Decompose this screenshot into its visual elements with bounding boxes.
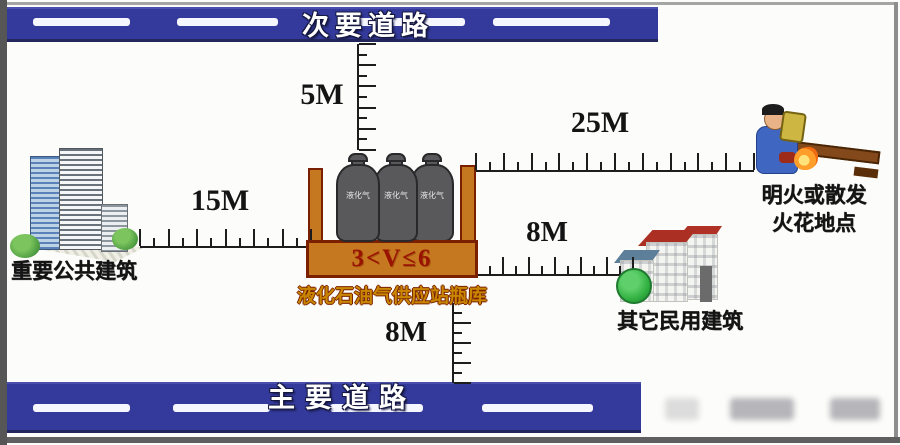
ruler-to-main-road [452,303,471,383]
ruler-tick [711,162,713,170]
lane-marking [33,18,130,26]
ruler-tick [528,257,530,274]
lane-marking [493,18,610,26]
welding-mask-icon [779,110,807,143]
ruler-tick [545,162,547,170]
frame-bottom-edge [0,437,900,443]
safety-distance-diagram: 次要道路 主要道路 5M 15M 25M 8M 8M 3<V≤6 液化石油气供应… [0,0,900,445]
gas-cylinder-icon: 液化气 [374,164,418,242]
ruler-tick [642,153,644,170]
ruler-tick [359,149,376,151]
ruler-tick [454,332,462,334]
ruler-tick [580,257,582,274]
ruler-tick [359,85,376,87]
flame-icon [794,147,818,170]
ruler-tick [567,266,569,274]
ruler-tick [454,352,462,354]
ruler-tick [359,107,376,109]
ruler-tick [541,266,543,274]
lane-marking [482,404,593,412]
bush-icon [10,234,40,258]
frame-top-edge [7,2,898,5]
lane-marking [173,404,270,412]
ruler-tick [697,153,699,170]
ruler-tick [593,266,595,274]
public-building-label: 重要公共建筑 [8,260,140,284]
ruler-tick [753,153,755,170]
ruler-tick [359,128,376,130]
ruler-tick [503,153,505,170]
ruler-tick [739,162,741,170]
welder-hair-icon [762,104,784,115]
ruler-tick [531,153,533,170]
ruler-tick [502,257,504,274]
ruler-tick [359,117,367,119]
lane-marking [177,18,278,26]
ruler-tick [600,162,602,170]
ruler-tick [267,238,269,246]
ruler-tick [475,153,477,170]
secondary-road-label: 次要道路 [302,13,434,40]
ruler-tick [454,362,471,364]
gas-cylinder-text: 液化气 [384,192,408,240]
container-base: 3<V≤6 [306,240,478,278]
ruler-tick [359,43,376,45]
ruler-tick [670,153,672,170]
ruler-to-public-building [140,229,311,248]
ruler-tick [586,153,588,170]
ruler-tick [489,266,491,274]
ruler-tick [359,138,367,140]
building-door [700,266,712,302]
ruler-tick [684,162,686,170]
ruler-to-civil-building [477,257,633,276]
ruler-tick [454,312,462,314]
watermark-blur [665,398,699,420]
gas-cylinder-text: 液化气 [346,192,370,240]
distance-8m-bottom-label: 8M [356,318,456,347]
station-caption: 液化石油气供应站瓶库 [288,281,496,308]
lane-marking [33,404,130,412]
ruler-tick [359,64,376,66]
ruler-tick [454,382,471,384]
ruler-tick [454,342,471,344]
ruler-tick [359,96,367,98]
ruler-tick [168,229,170,246]
ruler-tick [554,257,556,274]
work-bench-foot-icon [854,167,879,179]
ruler-to-secondary-road [357,44,376,150]
gas-cylinder-text: 液化气 [420,192,444,240]
ruler-tick [253,229,255,246]
volume-range-label: 3<V≤6 [351,245,432,273]
ruler-tick [359,54,367,56]
ruler-tick [515,266,517,274]
gas-cylinder-icon: 液化气 [336,164,380,242]
ruler-tick [153,238,155,246]
watermark-blur [730,398,794,420]
civil-building-label: 其它民用建筑 [614,310,746,334]
main-road-label: 主要道路 [268,385,416,412]
ruler-tick [628,162,630,170]
distance-8m-right-label: 8M [497,218,597,247]
open-flame-label-line1: 明火或散发 [756,184,872,208]
ruler-tick [606,257,608,274]
container-right-wall [460,165,476,243]
frame-right-edge [894,2,898,442]
distance-15m-label: 15M [165,186,275,216]
watermark-blur [830,398,880,420]
ruler-tick [296,238,298,246]
ruler-tick [489,162,491,170]
ruler-to-open-flame [476,153,754,172]
ruler-tick [182,238,184,246]
bush-icon [112,228,138,250]
ruler-tick [139,229,141,246]
ruler-tick [282,229,284,246]
ruler-tick [614,153,616,170]
ruler-tick [517,162,519,170]
ruler-tick [454,322,471,324]
ruler-tick [572,162,574,170]
public-building-tower-main [59,148,103,250]
ruler-tick [558,153,560,170]
ruler-tick [656,162,658,170]
ruler-tick [196,229,198,246]
frame-left-edge [0,0,7,445]
ruler-tick [225,229,227,246]
ruler-tick [454,372,462,374]
distance-25m-label: 25M [545,108,655,138]
ruler-tick [210,238,212,246]
tree-icon [616,268,652,304]
open-flame-label-line2: 火花地点 [760,212,868,236]
ruler-tick [725,153,727,170]
ruler-tick [359,75,367,77]
ruler-tick [239,238,241,246]
